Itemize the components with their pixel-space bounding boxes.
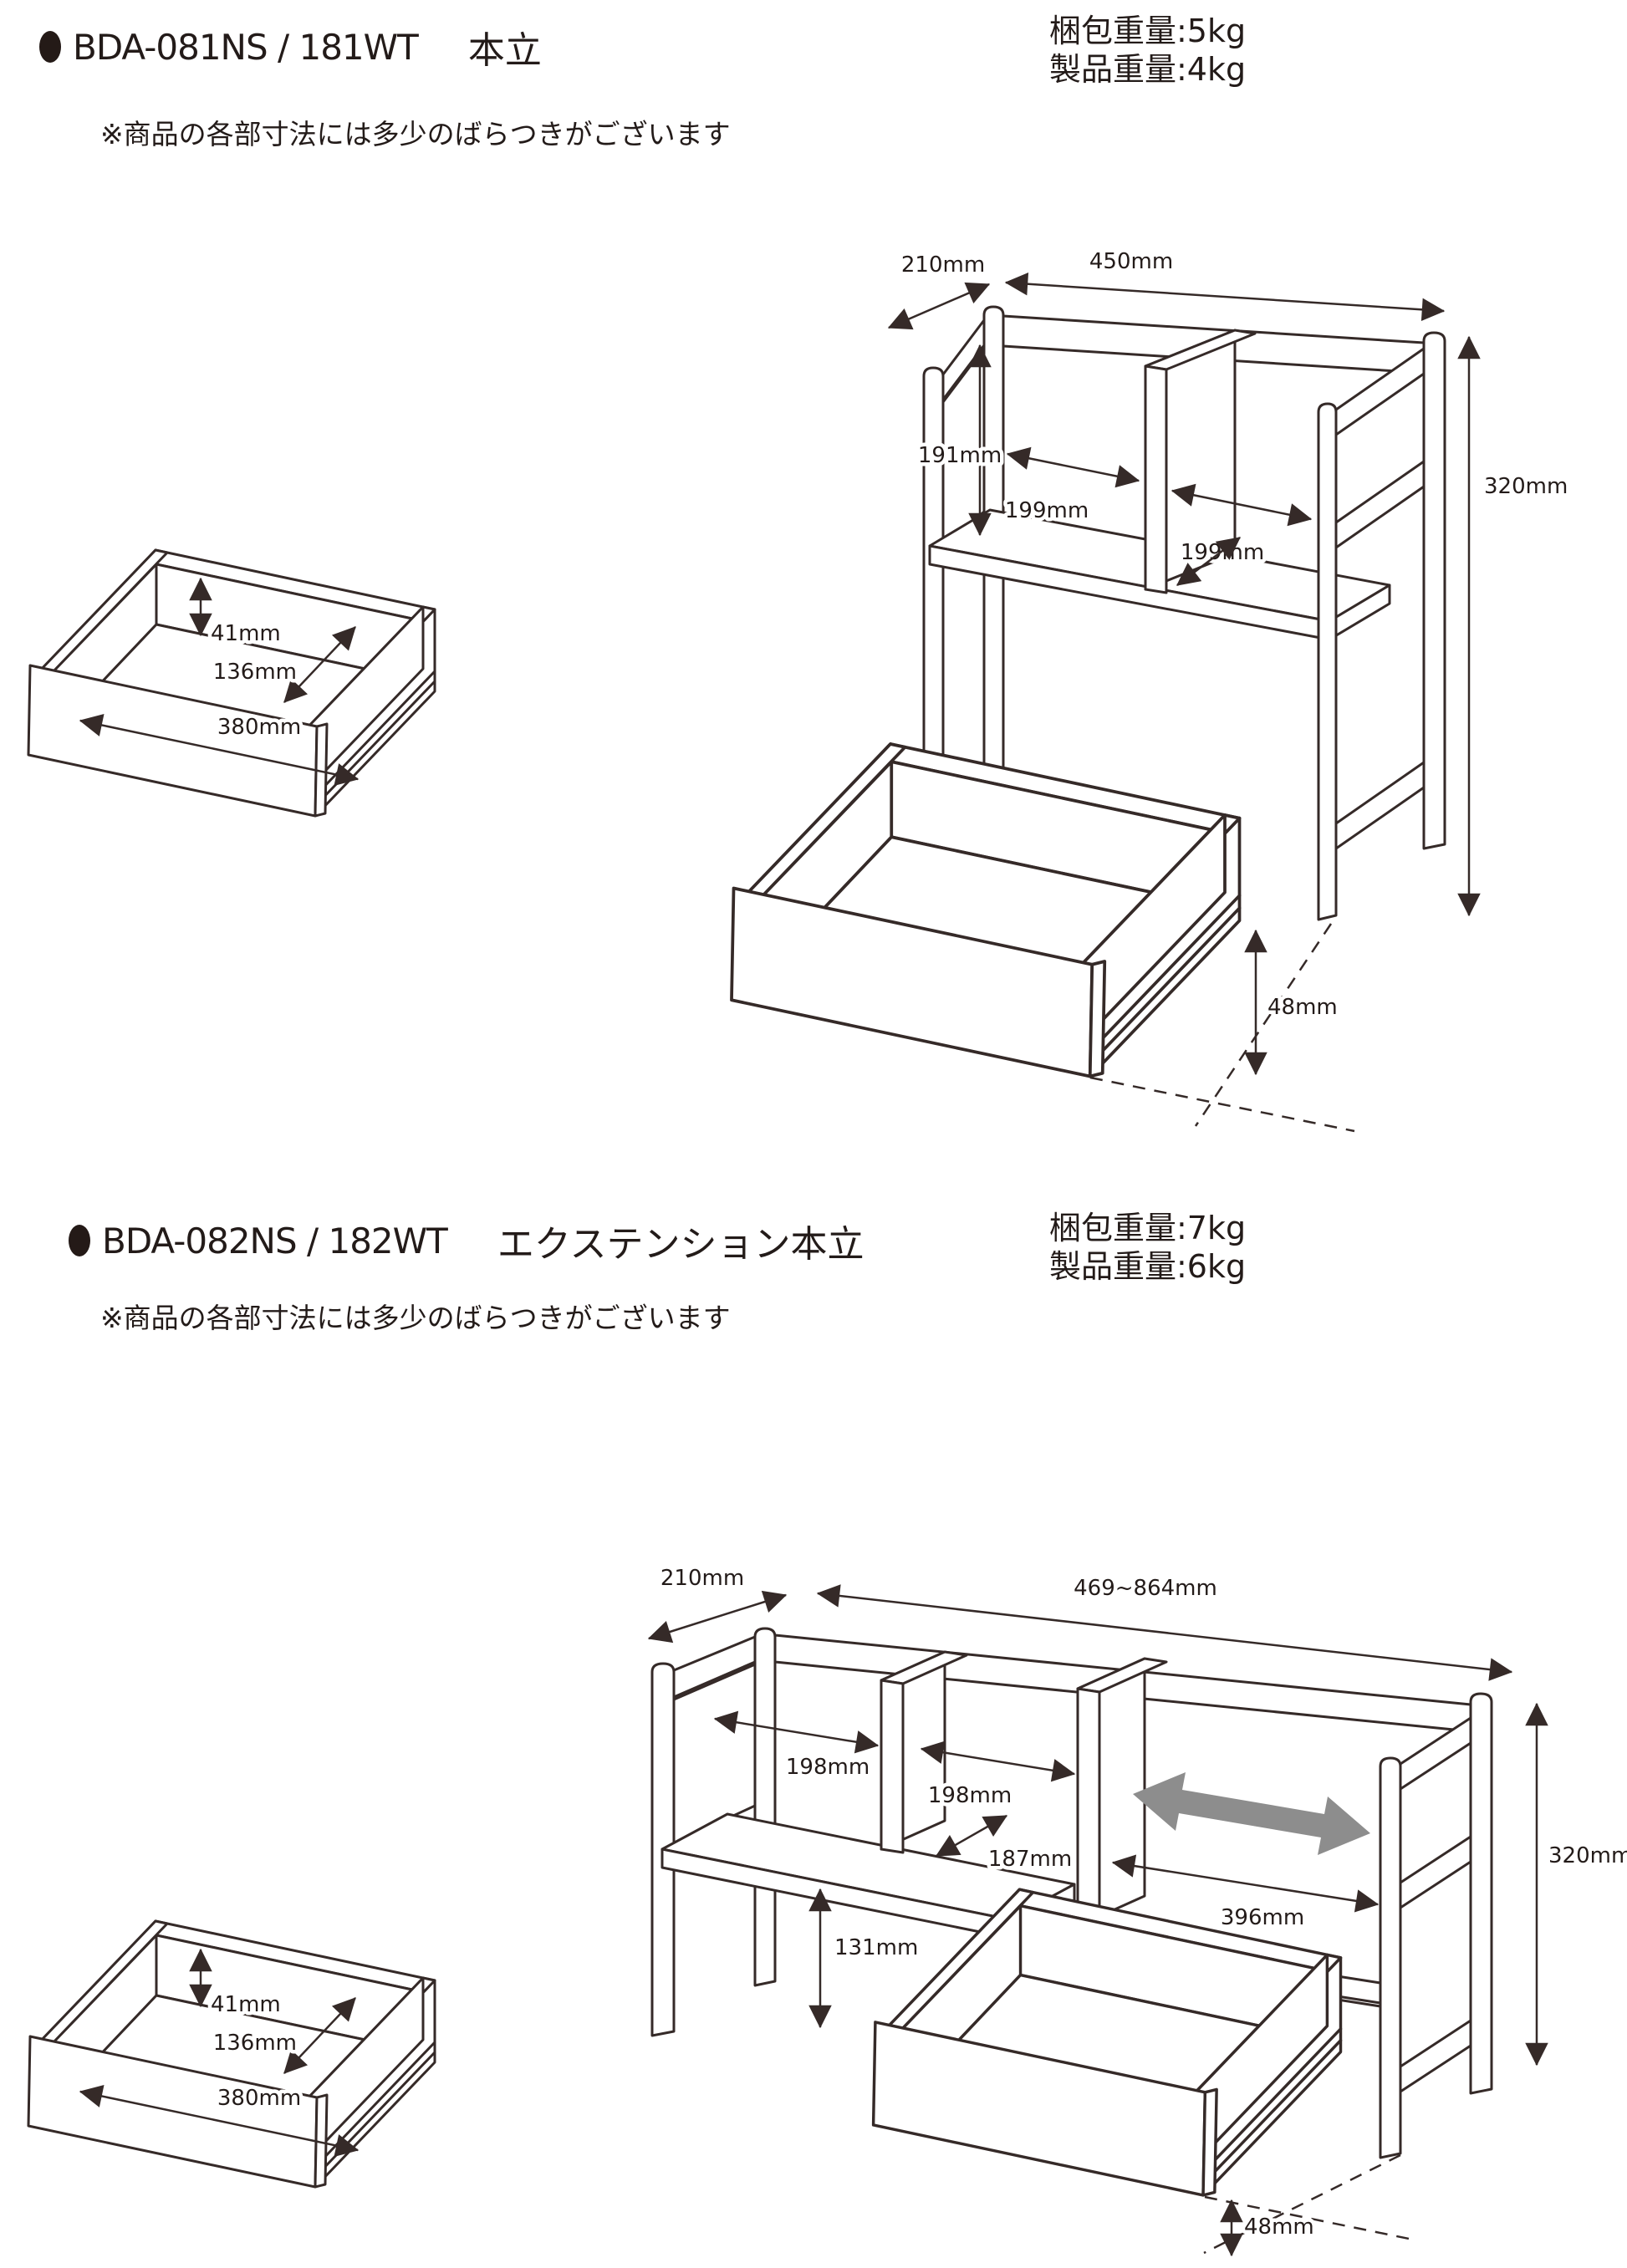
spec-sheet-page: BDA-081NS / 181WT 本立 梱包重量:5kg 製品重量:4kg ※… [0, 0, 1627, 2268]
drawer1-depth-label: 136mm [213, 660, 297, 685]
stand1-depth-label: 210mm [901, 252, 985, 278]
stand1-width-label: 450mm [1089, 249, 1173, 274]
drawer2-width-label: 380mm [217, 2086, 301, 2111]
stand1-total-height-dim: 320mm [1469, 337, 1568, 915]
product2-header: BDA-082NS / 182WT エクステンション本立 [69, 1214, 865, 1267]
product1-packing-weight: 梱包重量:5kg [1049, 12, 1246, 50]
extension-slide-arrow-icon [1133, 1772, 1370, 1855]
product2-product-weight: 製品重量:6kg [1049, 1247, 1246, 1286]
stand1-floor-dash-right [1196, 924, 1331, 1126]
stand2-left-slot-label: 198mm [786, 1755, 870, 1780]
stand2-depth-label: 210mm [660, 1566, 744, 1591]
product1-name: 本立 [468, 20, 542, 74]
product2-note: ※商品の各部寸法には多少のばらつきがございます [100, 1296, 731, 1336]
product1-stand-figure: 210mm 450mm 191mm 199mm 199mm 320mm 48mm [752, 238, 1627, 1141]
stand1-floor-dash-left [1090, 1078, 1354, 1131]
stand2-width-label: 469~864mm [1074, 1576, 1217, 1601]
stand1-depth-dim: 210mm [889, 252, 989, 328]
stand2-drawer [874, 1889, 1341, 2195]
stand1-clearance-dim: 48mm [1256, 930, 1338, 1074]
stand1-bay-height-label: 191mm [918, 443, 1002, 468]
stand2-clearance-dim: 48mm [1232, 2200, 1314, 2255]
stand1-total-height-label: 320mm [1484, 474, 1568, 499]
product2-bullet-icon [69, 1225, 90, 1256]
stand1-left-slot-label: 199mm [1005, 498, 1089, 523]
stand1-width-dim: 450mm [1006, 249, 1444, 311]
stand2-under-shelf-label: 131mm [834, 1935, 918, 1960]
product2-weights: 梱包重量:7kg 製品重量:6kg [1049, 1209, 1246, 1287]
product2-name: エクステンション本立 [497, 1214, 865, 1267]
product1-header: BDA-081NS / 181WT 本立 [39, 20, 542, 74]
product1-drawer-figure: 41mm 136mm 380mm [8, 418, 510, 844]
drawer1-width-label: 380mm [217, 715, 301, 740]
stand1-right-front-post [1318, 404, 1336, 920]
product1-product-weight: 製品重量:4kg [1049, 50, 1246, 89]
stand1-clearance-label: 48mm [1267, 995, 1338, 1020]
stand2-rail-length-label: 396mm [1221, 1905, 1304, 1930]
stand2-divider1 [881, 1652, 967, 1853]
product1-note: ※商品の各部寸法には多少のばらつきがございます [100, 112, 731, 152]
stand2-right-frame [1400, 1694, 1492, 2093]
stand2-total-height-dim: 320mm [1537, 1704, 1627, 2065]
product1-code: BDA-081NS / 181WT [73, 27, 418, 68]
stand1-right-slot-label: 199mm [1181, 540, 1264, 565]
product2-stand-figure: 210mm 469~864mm 198mm 198mm 187mm 131mm … [619, 1555, 1627, 2268]
stand2-right-slot-label: 198mm [928, 1783, 1012, 1808]
drawer2-height-label: 41mm [211, 1992, 281, 2017]
drawer1-height-label: 41mm [211, 621, 281, 646]
product1-bullet-icon [39, 31, 61, 63]
drawer2-depth-label: 136mm [213, 2031, 297, 2056]
stand2-right-front-post [1380, 1758, 1400, 2158]
product2-drawer-figure: 41mm 136mm 380mm [8, 1789, 510, 2215]
product1-weights: 梱包重量:5kg 製品重量:4kg [1049, 12, 1246, 89]
stand2-total-height-label: 320mm [1548, 1843, 1627, 1868]
stand2-shelf-depth-label: 187mm [988, 1847, 1072, 1872]
product2-code: BDA-082NS / 182WT [102, 1221, 447, 1261]
product2-packing-weight: 梱包重量:7kg [1049, 1209, 1246, 1247]
stand1-left-slot-dim: 199mm [1005, 454, 1139, 523]
stand1-drawer [732, 744, 1240, 1077]
stand2-clearance-label: 48mm [1244, 2214, 1314, 2240]
